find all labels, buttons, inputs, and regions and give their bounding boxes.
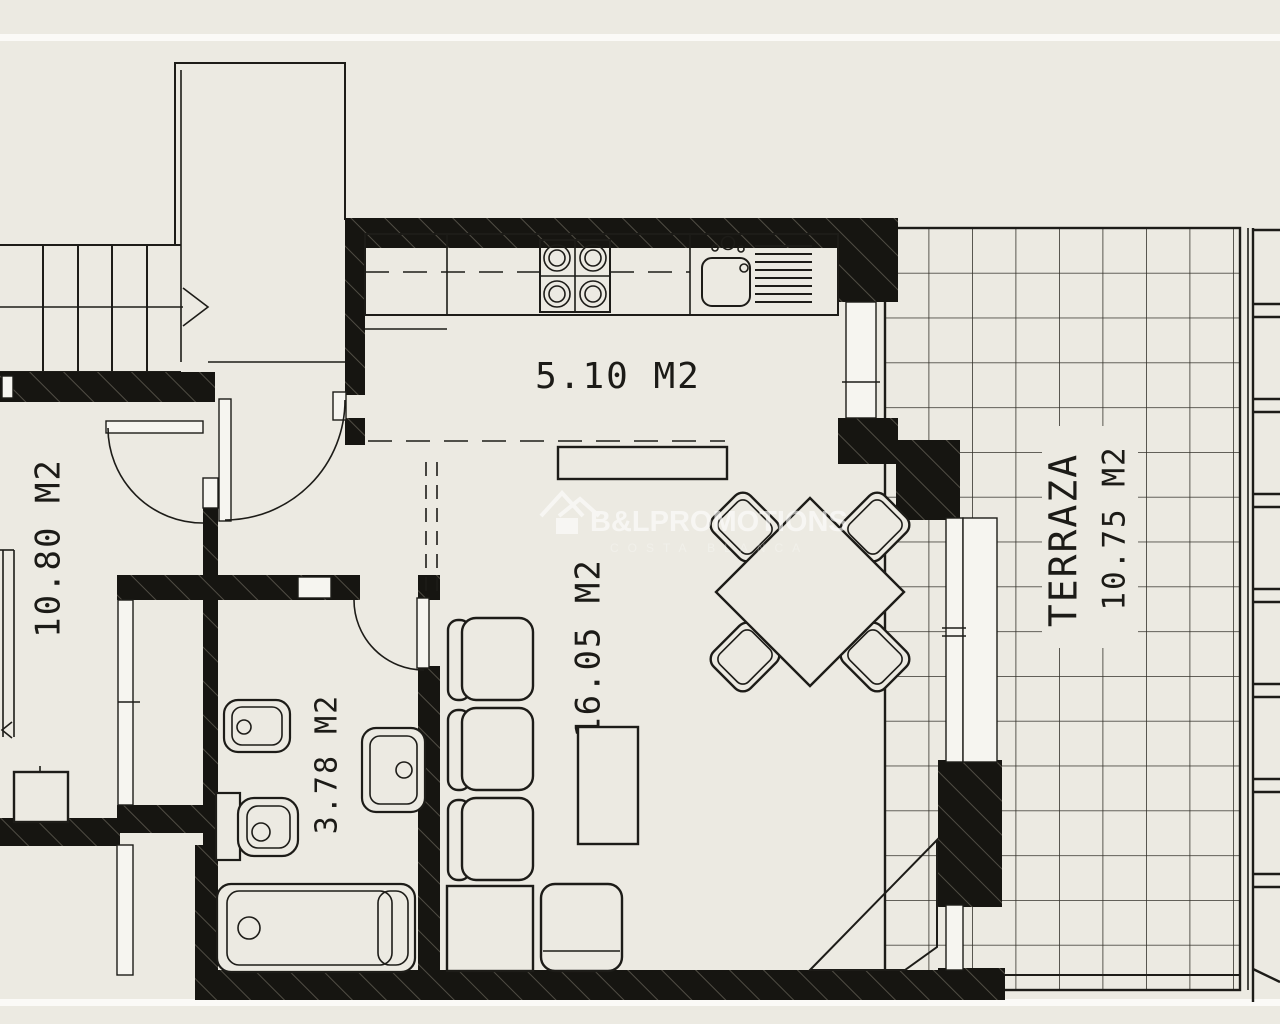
- bedroom-door-jamb: [203, 478, 218, 508]
- terrace-name-label: TERRAZA: [1042, 453, 1086, 627]
- bathroom-door-jamb: [298, 577, 331, 598]
- bathtub: [217, 884, 415, 972]
- floor-plan: TERRAZA 10.75 M2: [0, 0, 1280, 1024]
- terrace-door-sill: [963, 518, 997, 762]
- bathroom-door-leaf: [417, 598, 429, 668]
- kitchen-terrace-window: [846, 302, 876, 418]
- watermark-subtitle: COSTA BLANCA: [610, 541, 809, 555]
- floor-plan-page: TERRAZA 10.75 M2: [0, 0, 1280, 1024]
- bedroom-area-label: 10.80 M2: [29, 458, 69, 638]
- living-terrace-glass-door: [946, 518, 963, 762]
- bedroom-door-leaf: [106, 421, 203, 433]
- toilet: [216, 793, 298, 860]
- coffee-table: [578, 727, 638, 844]
- lounge-chair: [541, 884, 622, 971]
- washbasin: [362, 728, 425, 812]
- sideboard: [558, 447, 727, 479]
- side-table: [447, 886, 533, 971]
- window-jamb: [2, 376, 13, 398]
- sofa: [448, 618, 533, 880]
- window-band-lower-left: [117, 845, 133, 975]
- bidet: [224, 700, 290, 752]
- bathroom-area-label: 3.78 M2: [310, 694, 345, 834]
- watermark-brand: B&LPROMOTIONS: [590, 506, 848, 538]
- kitchen-area-label: 5.10 M2: [535, 356, 701, 397]
- entry-door-leaf: [219, 399, 231, 521]
- living-area-label: 16.05 M2: [569, 558, 609, 738]
- living-terrace-window-low: [946, 905, 963, 970]
- page-edge-top: [0, 34, 1280, 41]
- terrace-area-label: 10.75 M2: [1097, 445, 1133, 610]
- nightstand: [14, 766, 68, 822]
- page-edge-bottom: [0, 999, 1280, 1006]
